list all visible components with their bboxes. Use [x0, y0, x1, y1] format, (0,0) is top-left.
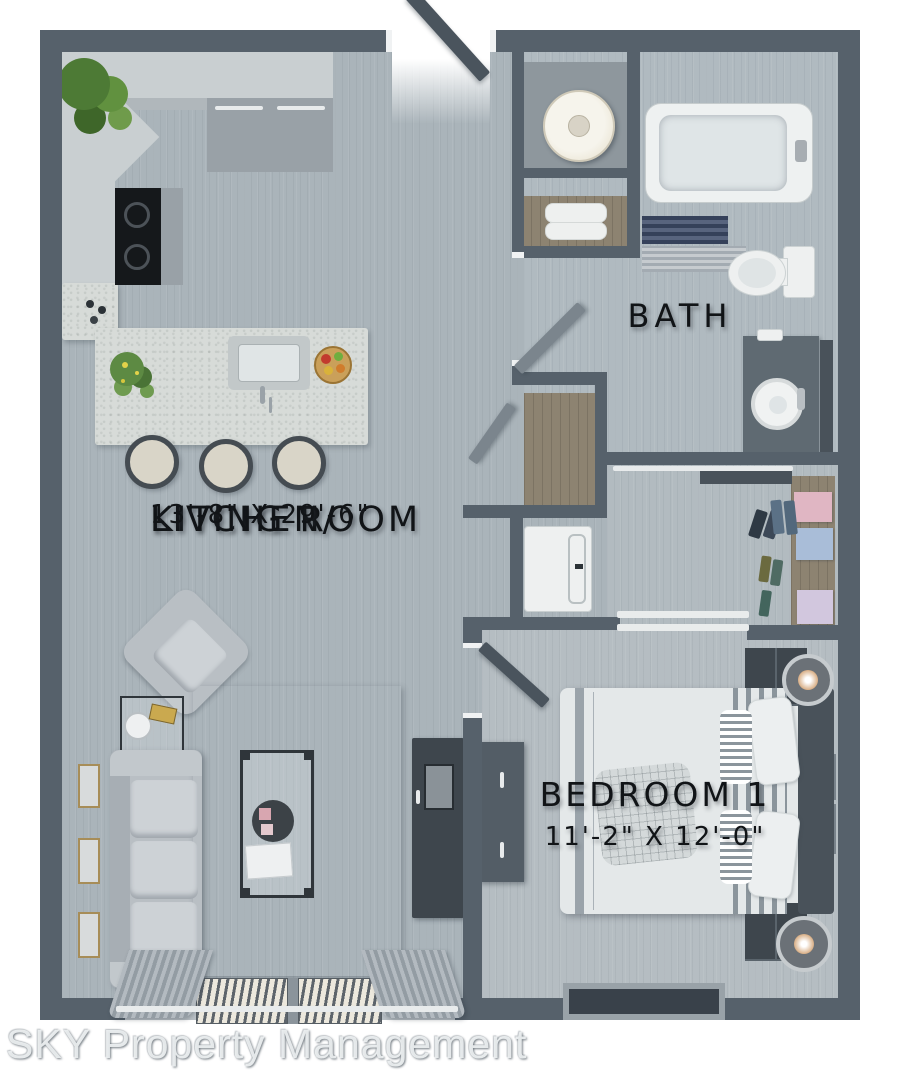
entry-jamb-right — [490, 30, 496, 52]
fruit-bowl — [314, 346, 352, 384]
closet-front-wall-east — [747, 625, 838, 640]
vanity-sink-drain — [769, 396, 787, 414]
tv-screen — [424, 764, 454, 810]
bedroom-divider-stub — [463, 630, 482, 643]
bedroom-divider-wall — [463, 718, 482, 998]
side-table-lamp — [124, 712, 152, 740]
coffee-table-tray — [252, 800, 294, 842]
bath-mat-dark — [642, 216, 728, 244]
bath-door-jamb-top — [512, 252, 524, 258]
entry-jamb-left — [386, 30, 392, 52]
bath-wall-bottom — [607, 452, 838, 465]
fruit-red — [321, 354, 331, 364]
tray-napkin-2 — [261, 824, 273, 835]
counter-bottles — [86, 300, 94, 308]
kitchen-living-dimensions: 13'-8" X 29'-6" — [150, 496, 371, 535]
wall-art-1 — [78, 764, 100, 808]
coffee-table-corner-3 — [240, 888, 250, 898]
closet-sliding-track-lower — [617, 624, 749, 631]
towel-top — [545, 203, 607, 223]
appliance-handle-1 — [215, 106, 263, 110]
fruit-orange — [336, 364, 345, 373]
fruit-yellow — [324, 366, 333, 375]
closet-shelf-board — [700, 471, 792, 484]
island-sink-basin — [238, 344, 300, 382]
headboard — [798, 688, 834, 914]
bathtub-faucet — [795, 140, 807, 162]
bedroom-label: BEDROOM 1 11'-2" X 12'-0" — [515, 772, 795, 857]
curtain-rod — [116, 1006, 458, 1012]
vanity-faucet — [797, 388, 805, 410]
stove-burner-rear — [124, 244, 150, 270]
dresser-handle-1 — [500, 772, 504, 788]
dresser-handle-2 — [500, 842, 504, 858]
living-window-blind-right — [298, 978, 382, 1024]
bathroom-mirror — [820, 340, 833, 452]
lamp-bulb-north — [798, 670, 818, 690]
island-plant — [110, 352, 144, 386]
corner-plant — [58, 58, 110, 110]
coffee-table-corner-2 — [304, 750, 314, 760]
closet-box-blue — [796, 528, 833, 560]
bathtub-basin — [659, 115, 787, 191]
bath-label: BATH — [605, 294, 755, 339]
heater-closet-divider — [524, 168, 627, 178]
tv-console-handle — [416, 790, 420, 804]
bedroom-door-jamb-bottom — [463, 713, 482, 718]
tray-napkin-1 — [259, 808, 271, 820]
coffee-table-corner-4 — [304, 888, 314, 898]
water-heater-cap — [568, 115, 590, 137]
closet-box-lavender — [797, 590, 833, 624]
towel-bottom — [545, 222, 607, 240]
bar-stool-3 — [272, 436, 326, 490]
lamp-bulb-south — [794, 934, 814, 954]
towel-closet-wall-bottom — [512, 246, 640, 258]
sofa-cushion-1 — [130, 780, 198, 838]
appliance-handle-2 — [277, 106, 325, 110]
pantry-wall-top — [512, 372, 607, 385]
closet-sliding-track-upper — [617, 611, 749, 618]
bar-stool-2 — [199, 439, 253, 493]
bedroom-label-name: BEDROOM 1 — [515, 772, 795, 818]
sofa-arm-top — [110, 750, 202, 776]
outer-wall-top-right — [490, 30, 860, 52]
toilet-seat — [738, 258, 776, 288]
oven-door — [161, 188, 183, 285]
watermark: SKY Property Management — [6, 1021, 527, 1068]
outer-wall-left — [40, 30, 62, 1020]
sofa-cushion-2 — [130, 841, 198, 899]
closet-box-pink — [794, 492, 832, 522]
living-window-post — [288, 978, 298, 1024]
coffee-table-corner-1 — [240, 750, 250, 760]
floor-plan: KITCHEN/ LIVING ROOM 13'-8" X 29'-6" BAT… — [0, 0, 897, 1080]
pantry-wall-right — [595, 385, 607, 517]
washer-handle — [575, 564, 583, 569]
living-window-blind-left — [196, 978, 288, 1024]
washer-door — [568, 534, 586, 604]
bar-stool-1 — [125, 435, 179, 489]
bedroom-dimensions: 11'-2" X 12'-0" — [515, 818, 795, 857]
toilet-paper-holder — [757, 329, 783, 341]
island-faucet — [260, 386, 265, 404]
wall-art-3 — [78, 912, 100, 958]
bedroom-window — [563, 983, 725, 1020]
heater-closet-wall-right — [627, 52, 640, 258]
island-plant-flowers — [122, 362, 128, 368]
laundry-closet-wall-left — [510, 518, 523, 617]
coffee-table-books — [245, 842, 293, 879]
heater-closet-wall-left — [512, 52, 524, 258]
outer-wall-top-left — [40, 30, 392, 52]
wall-art-2 — [78, 838, 100, 884]
stove-burner-front — [124, 202, 150, 228]
outer-wall-right — [838, 30, 860, 1020]
fruit-green — [334, 352, 343, 361]
bedroom-wall-top-west — [463, 617, 620, 630]
pantry-floor — [524, 393, 595, 508]
laundry-closet-wall-top — [463, 505, 607, 518]
